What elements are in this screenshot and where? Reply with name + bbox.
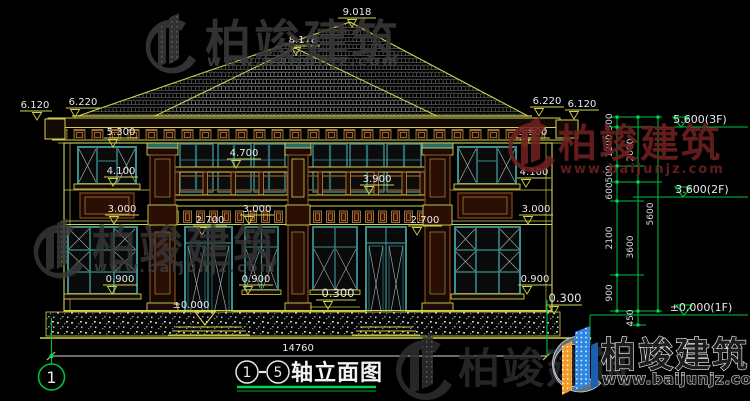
svg-text:5600: 5600 — [646, 202, 656, 225]
window-sill — [454, 184, 520, 189]
drawing-title: 1 5 轴立面图 — [236, 360, 383, 391]
dim-left-5300: 5.300 — [104, 127, 138, 147]
svg-text:1: 1 — [243, 365, 252, 381]
title-text: 轴立面图 — [291, 360, 383, 386]
cad-elevation-drawing: 9.018 8.178 6.120 6.220 5.300 4.100 3.00… — [0, 0, 750, 401]
window-1f-center-right — [310, 227, 360, 295]
svg-text:14760: 14760 — [282, 343, 314, 354]
dim-right-6220: 6.220 — [530, 96, 564, 116]
watermark-right-red: 柏竣建筑 www.baijunjz.com — [508, 117, 724, 177]
svg-text:±0.000(1F): ±0.000(1F) — [670, 301, 733, 314]
svg-text:3.000: 3.000 — [522, 204, 551, 215]
svg-text:900: 900 — [605, 284, 615, 301]
window-sill — [64, 294, 141, 299]
svg-text:0.300: 0.300 — [549, 291, 582, 305]
svg-text:3.600(2F): 3.600(2F) — [675, 183, 728, 196]
dim-center-0300: 0.300 — [316, 286, 356, 309]
pilaster-right — [422, 143, 453, 311]
svg-text:6.220: 6.220 — [69, 97, 98, 108]
svg-text:5: 5 — [274, 365, 283, 381]
dim-right-0900: 0.900 — [518, 274, 552, 294]
svg-text:6.120: 6.120 — [21, 100, 50, 111]
svg-text:2100: 2100 — [605, 226, 615, 249]
svg-text:2.700: 2.700 — [411, 215, 440, 226]
watermark-url-text: www.baijunjz.com — [207, 52, 400, 70]
svg-text:450: 450 — [626, 309, 636, 326]
svg-text:3.000: 3.000 — [243, 204, 272, 215]
window-sill — [74, 184, 140, 189]
modillion-row — [66, 129, 546, 139]
window-sill — [451, 294, 524, 299]
svg-text:3600: 3600 — [626, 235, 636, 258]
watermark-top: 柏竣建筑 www.baijunjz.com — [146, 13, 401, 73]
svg-text:0.300: 0.300 — [322, 286, 355, 300]
watermark-bottom-gray: 柏竣建筑 — [396, 333, 634, 400]
dim-right-6120: 6.120 — [565, 99, 599, 119]
balcony-slab — [172, 195, 450, 200]
brand-logo: 柏竣建筑 www.baijunjz.com — [552, 326, 750, 395]
drawing-canvas: 9.018 8.178 6.120 6.220 5.300 4.100 3.00… — [0, 0, 750, 401]
svg-text:www.baijunjz.com: www.baijunjz.com — [560, 162, 725, 177]
svg-text:4.100: 4.100 — [107, 166, 136, 177]
window-1f-right — [451, 227, 524, 299]
pilaster-center — [285, 143, 311, 311]
cornice-left-end — [45, 119, 65, 139]
svg-text:6.120: 6.120 — [568, 99, 597, 110]
plinth-base — [40, 307, 580, 338]
svg-text:600: 600 — [605, 182, 615, 199]
axis-bubble-number: 1 — [46, 368, 56, 387]
svg-text:3.000: 3.000 — [108, 204, 137, 215]
svg-text:0.900: 0.900 — [521, 274, 550, 285]
level-2f: 3.600(2F) — [633, 183, 748, 197]
svg-text:±0.000: ±0.000 — [172, 300, 209, 311]
chain-outer-labels: 5600 — [646, 202, 656, 225]
svg-text:4.700: 4.700 — [230, 148, 259, 159]
svg-text:3.900: 3.900 — [363, 174, 392, 185]
svg-text:6.220: 6.220 — [533, 96, 562, 107]
logo-url-text: www.baijunjz.com — [602, 370, 750, 388]
svg-text:www.baijunjz.com: www.baijunjz.com — [94, 260, 277, 276]
logo-tower-blue-small — [591, 342, 598, 389]
svg-text:柏竣建筑: 柏竣建筑 — [558, 122, 722, 167]
svg-text:5.300: 5.300 — [107, 127, 136, 138]
dim-left-6120: 6.120 — [20, 100, 52, 120]
